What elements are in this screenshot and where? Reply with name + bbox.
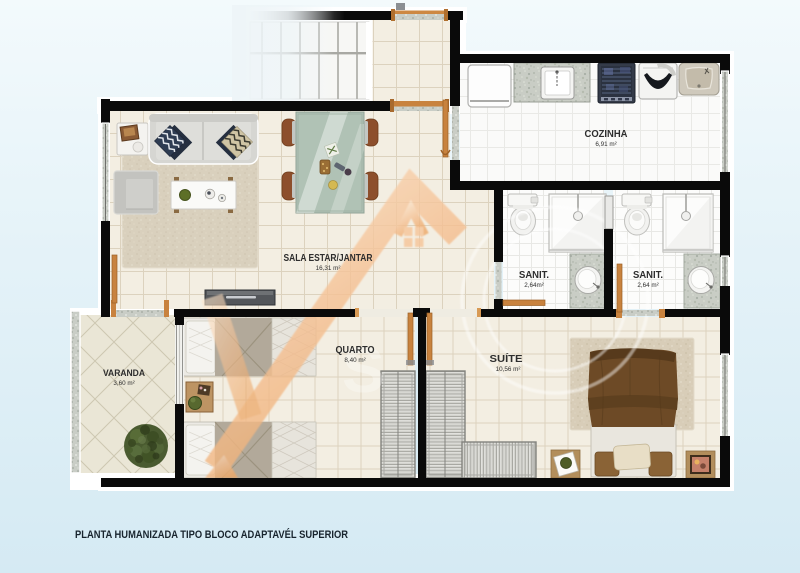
svg-text:VARANDA: VARANDA <box>103 368 145 379</box>
svg-text:8,40 m²: 8,40 m² <box>344 357 365 364</box>
svg-text:10,56 m²: 10,56 m² <box>496 366 521 373</box>
svg-text:COZINHA: COZINHA <box>585 129 628 140</box>
svg-text:SALA ESTAR/JANTAR: SALA ESTAR/JANTAR <box>284 253 374 264</box>
svg-text:2,64 m²: 2,64 m² <box>637 282 658 289</box>
svg-text:2,64m²: 2,64m² <box>524 282 544 289</box>
svg-text:SUÍTE: SUÍTE <box>490 352 523 365</box>
svg-text:16,31 m²: 16,31 m² <box>316 265 341 272</box>
svg-text:3,60 m²: 3,60 m² <box>113 380 134 387</box>
svg-text:SANIT.: SANIT. <box>519 270 549 281</box>
svg-text:6,91 m²: 6,91 m² <box>595 141 616 148</box>
svg-text:PLANTA HUMANIZADA TIPO BLOCO A: PLANTA HUMANIZADA TIPO BLOCO ADAPTAVÉL S… <box>75 528 348 541</box>
svg-text:QUARTO: QUARTO <box>336 345 375 356</box>
svg-text:SANIT.: SANIT. <box>633 270 663 281</box>
